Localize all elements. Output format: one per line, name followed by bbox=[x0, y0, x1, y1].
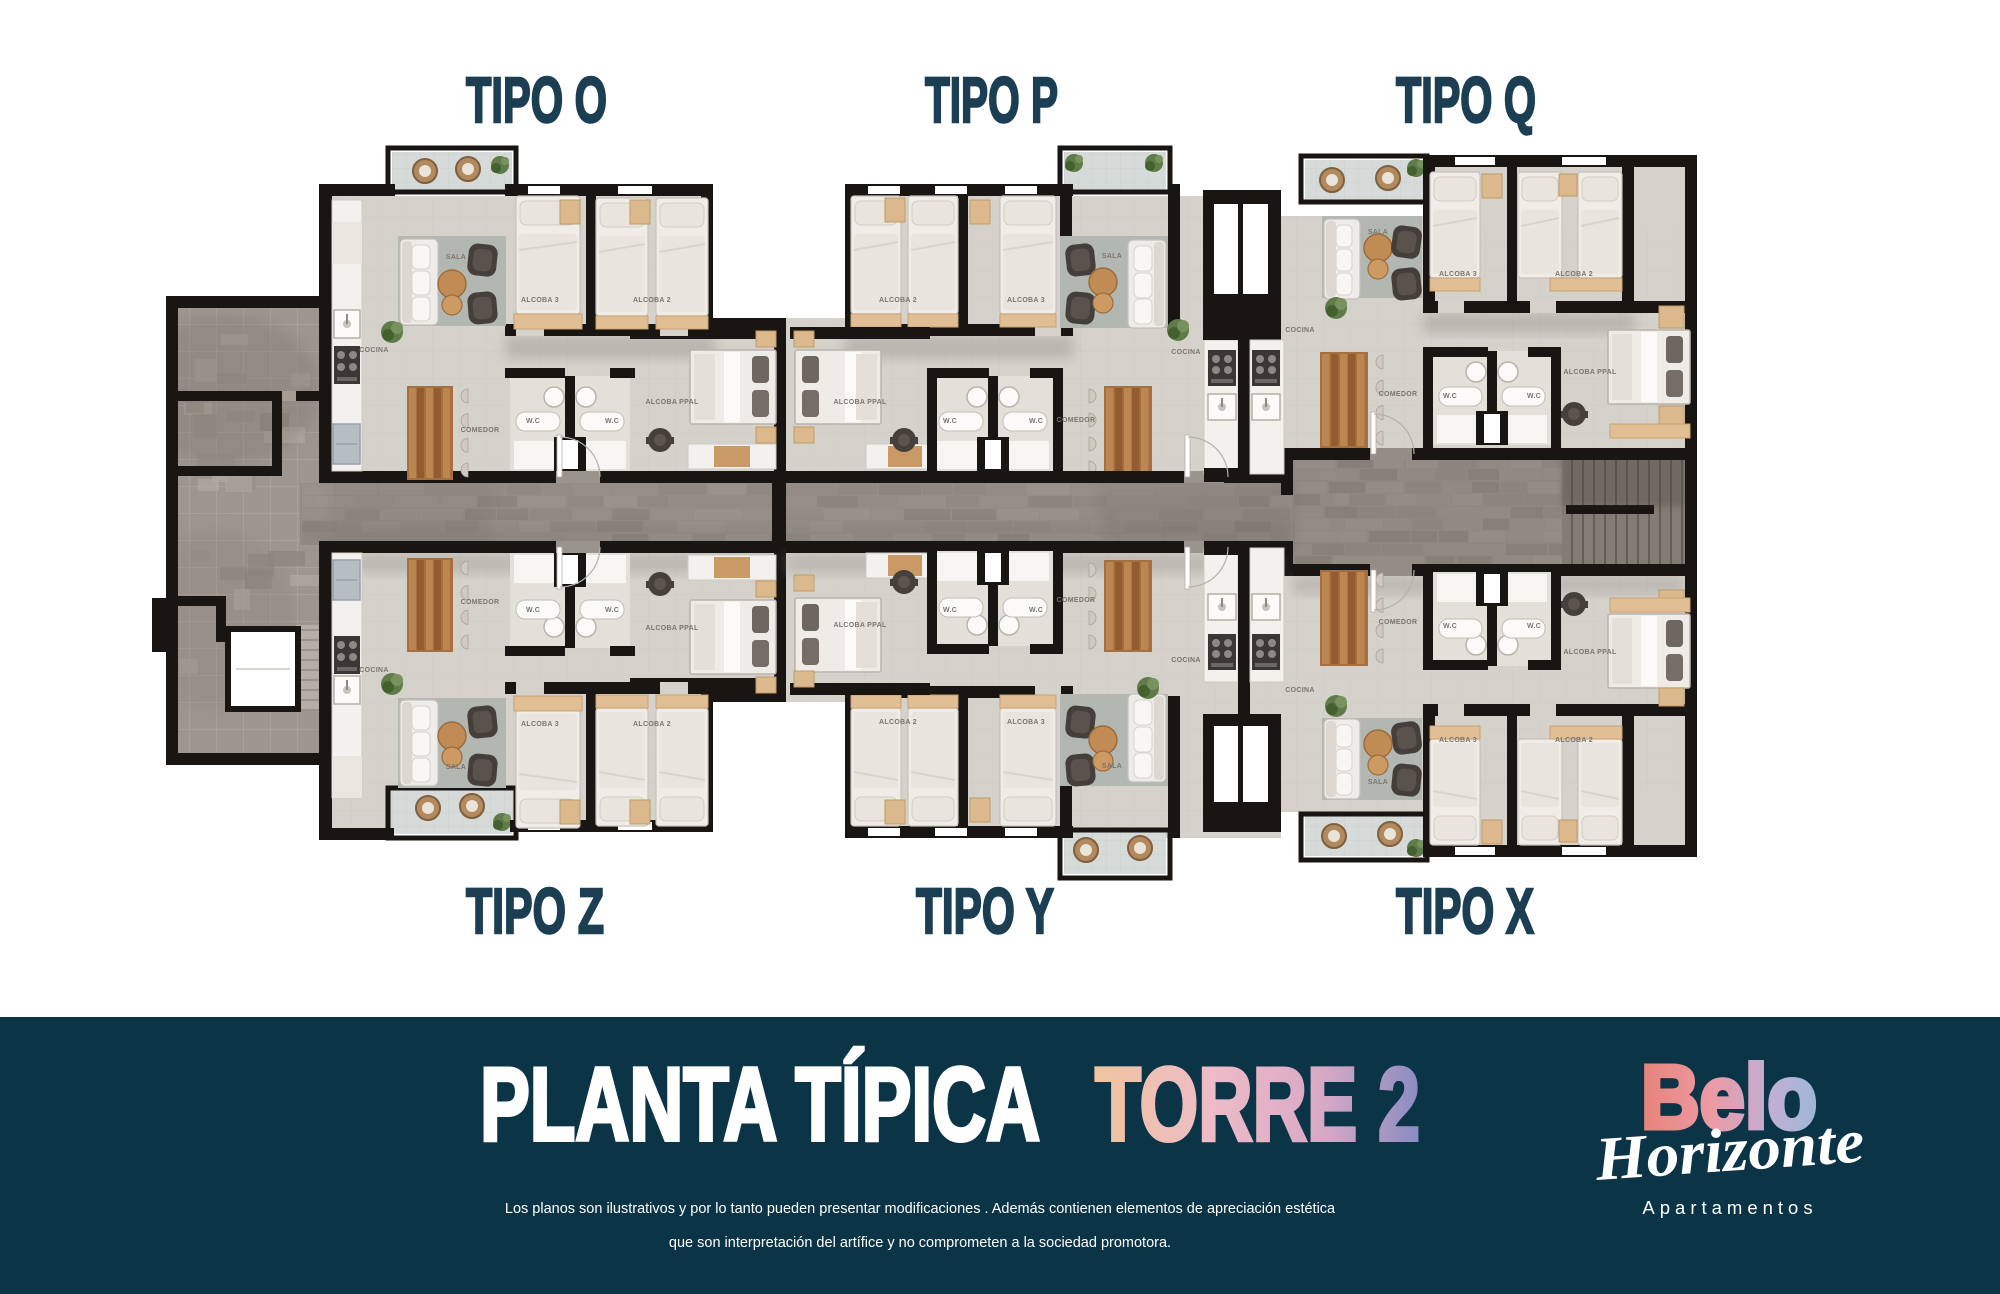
svg-text:ALCOBA PPAL: ALCOBA PPAL bbox=[1563, 369, 1616, 376]
svg-text:SALA: SALA bbox=[446, 254, 466, 261]
svg-text:ALCOBA PPAL: ALCOBA PPAL bbox=[833, 622, 886, 629]
svg-text:ALCOBA 3: ALCOBA 3 bbox=[1007, 719, 1045, 726]
svg-text:COMEDOR: COMEDOR bbox=[1379, 619, 1418, 626]
svg-text:que son interpretación del art: que son interpretación del artífice y no… bbox=[669, 1235, 1171, 1251]
svg-text:SALA: SALA bbox=[446, 764, 466, 771]
svg-text:PLANTA TÍPICA: PLANTA TÍPICA bbox=[480, 1047, 1040, 1163]
svg-text:COMEDOR: COMEDOR bbox=[1379, 391, 1418, 398]
svg-text:W.C: W.C bbox=[1029, 418, 1043, 425]
svg-text:ALCOBA 2: ALCOBA 2 bbox=[633, 721, 671, 728]
svg-text:ALCOBA 3: ALCOBA 3 bbox=[521, 721, 559, 728]
svg-text:Los planos son ilustrativos y: Los planos son ilustrativos y por lo tan… bbox=[505, 1201, 1336, 1217]
svg-text:ALCOBA PPAL: ALCOBA PPAL bbox=[1563, 649, 1616, 656]
svg-text:W.C: W.C bbox=[1443, 393, 1457, 400]
svg-text:W.C: W.C bbox=[943, 418, 957, 425]
svg-text:W.C: W.C bbox=[1527, 623, 1541, 630]
svg-text:COCINA: COCINA bbox=[1171, 349, 1200, 356]
svg-text:TIPO Y: TIPO Y bbox=[916, 875, 1054, 947]
svg-text:TIPO O: TIPO O bbox=[466, 64, 607, 136]
svg-text:ALCOBA 3: ALCOBA 3 bbox=[1439, 737, 1477, 744]
svg-text:ALCOBA 2: ALCOBA 2 bbox=[879, 719, 917, 726]
svg-text:W.C: W.C bbox=[1527, 393, 1541, 400]
svg-text:COMEDOR: COMEDOR bbox=[461, 599, 500, 606]
svg-text:ALCOBA 2: ALCOBA 2 bbox=[879, 297, 917, 304]
svg-text:COCINA: COCINA bbox=[359, 347, 388, 354]
svg-text:TORRE 2: TORRE 2 bbox=[1095, 1047, 1420, 1163]
svg-text:COCINA: COCINA bbox=[1171, 657, 1200, 664]
svg-text:ALCOBA PPAL: ALCOBA PPAL bbox=[833, 399, 886, 406]
svg-text:COMEDOR: COMEDOR bbox=[1057, 417, 1096, 424]
svg-text:W.C: W.C bbox=[526, 418, 540, 425]
svg-text:COCINA: COCINA bbox=[1285, 327, 1314, 334]
svg-text:TIPO Q: TIPO Q bbox=[1396, 64, 1536, 136]
svg-text:ALCOBA 3: ALCOBA 3 bbox=[1007, 297, 1045, 304]
svg-text:W.C: W.C bbox=[605, 607, 619, 614]
svg-text:COCINA: COCINA bbox=[1285, 687, 1314, 694]
svg-text:SALA: SALA bbox=[1368, 779, 1388, 786]
svg-text:COCINA: COCINA bbox=[359, 667, 388, 674]
svg-text:W.C: W.C bbox=[526, 607, 540, 614]
svg-text:ALCOBA 2: ALCOBA 2 bbox=[1555, 737, 1593, 744]
svg-text:ALCOBA 2: ALCOBA 2 bbox=[1555, 271, 1593, 278]
svg-text:ALCOBA 3: ALCOBA 3 bbox=[521, 297, 559, 304]
svg-text:ALCOBA PPAL: ALCOBA PPAL bbox=[645, 625, 698, 632]
svg-text:W.C: W.C bbox=[605, 418, 619, 425]
svg-text:ALCOBA 3: ALCOBA 3 bbox=[1439, 271, 1477, 278]
svg-text:TIPO Z: TIPO Z bbox=[466, 875, 604, 947]
svg-text:COMEDOR: COMEDOR bbox=[461, 427, 500, 434]
svg-text:TIPO P: TIPO P bbox=[925, 64, 1058, 136]
svg-text:ALCOBA PPAL: ALCOBA PPAL bbox=[645, 399, 698, 406]
svg-text:W.C: W.C bbox=[1029, 607, 1043, 614]
svg-text:SALA: SALA bbox=[1368, 229, 1388, 236]
svg-text:SALA: SALA bbox=[1102, 253, 1122, 260]
svg-text:SALA: SALA bbox=[1102, 763, 1122, 770]
svg-text:TIPO X: TIPO X bbox=[1396, 875, 1534, 947]
svg-text:ALCOBA 2: ALCOBA 2 bbox=[633, 297, 671, 304]
svg-text:W.C: W.C bbox=[1443, 623, 1457, 630]
svg-text:COMEDOR: COMEDOR bbox=[1057, 597, 1096, 604]
svg-text:Apartamentos: Apartamentos bbox=[1642, 1197, 1817, 1218]
svg-text:W.C: W.C bbox=[943, 607, 957, 614]
